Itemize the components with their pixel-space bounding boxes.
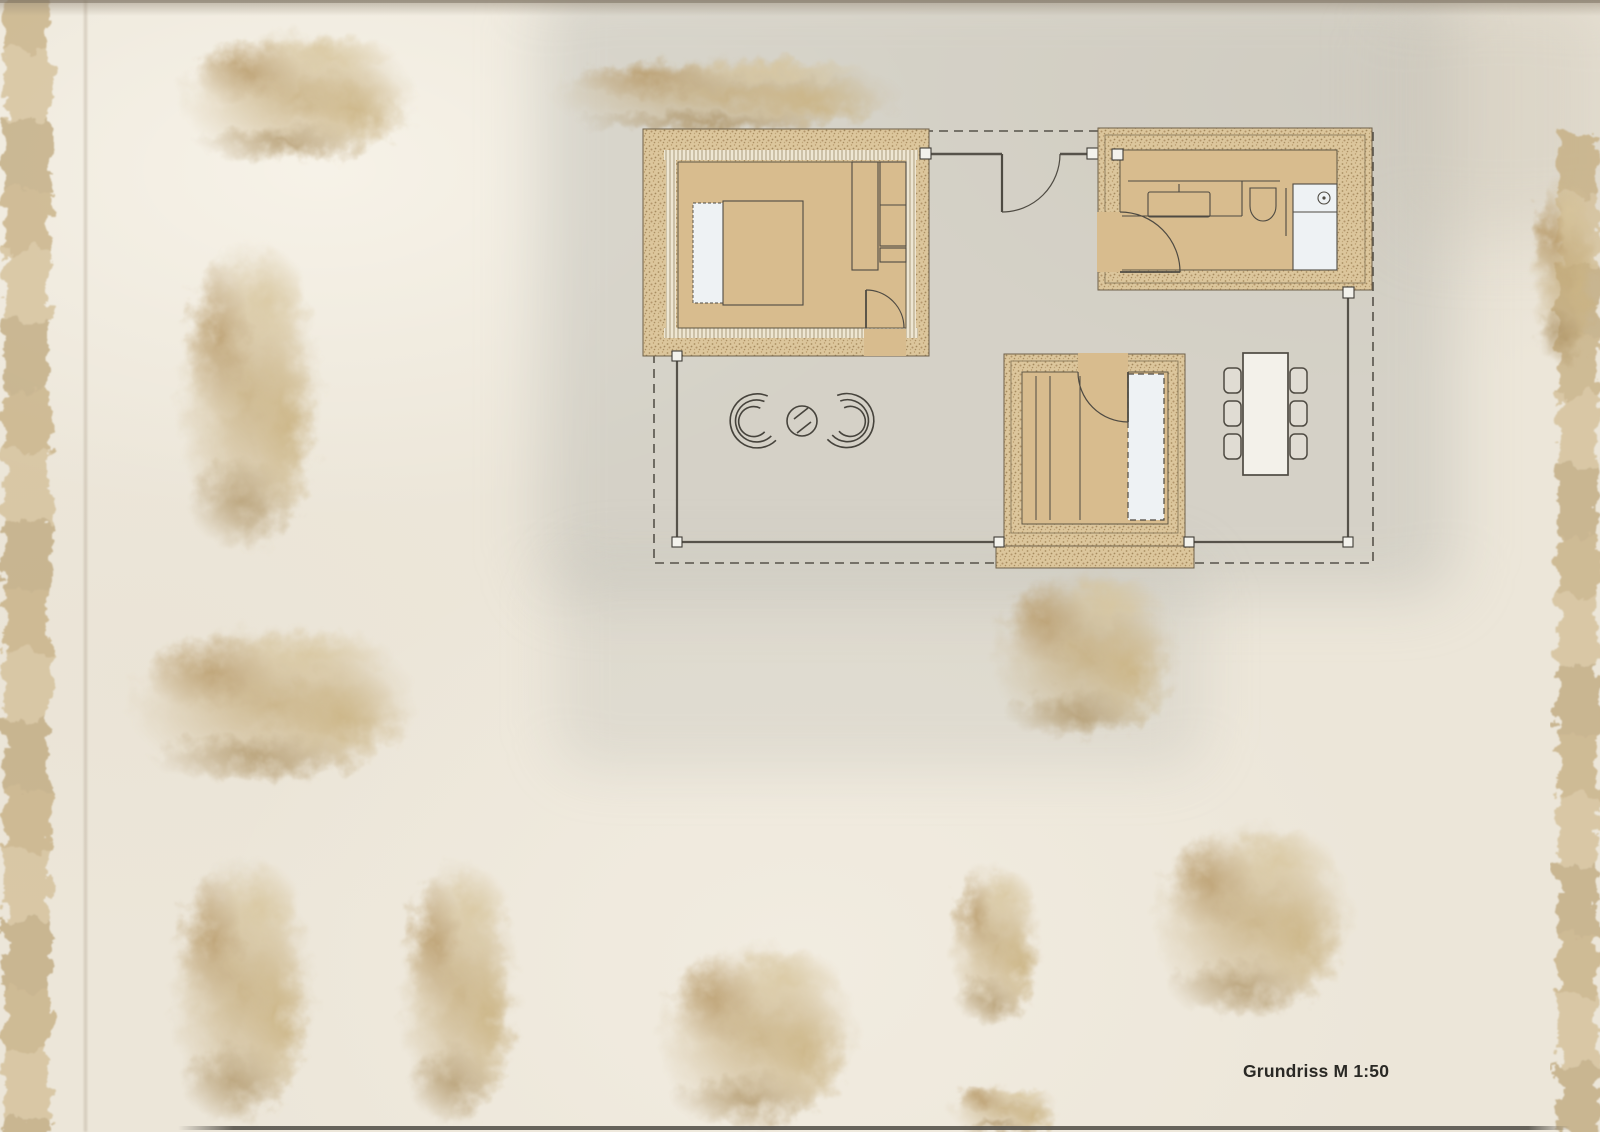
floor-plan-drawing (0, 0, 1600, 1132)
bed-mattress (723, 201, 803, 305)
column (1343, 537, 1353, 547)
entry-door (1002, 154, 1060, 212)
bathroom-block (1097, 128, 1372, 290)
column (672, 351, 682, 361)
kitchen-block (996, 353, 1194, 568)
coffee-table (787, 406, 817, 436)
bedroom-liner-left (666, 158, 676, 330)
shower (1293, 184, 1337, 270)
bedroom-liner-right (906, 158, 916, 330)
column (994, 537, 1004, 547)
bed (693, 201, 803, 305)
column (1087, 148, 1098, 159)
dining-set (1224, 353, 1307, 475)
site-plan-canvas: Grundriss M 1:50 (0, 0, 1600, 1132)
bed-pillow (693, 203, 723, 303)
kitchen-glazing (1128, 374, 1164, 520)
lounge-set (727, 391, 878, 452)
column (1343, 287, 1354, 298)
entry-facade (920, 148, 1098, 212)
column (1184, 537, 1194, 547)
paper-bottom-edge-line (178, 1126, 1570, 1130)
plan-title: Grundriss M 1:50 (1243, 1061, 1389, 1082)
column (672, 537, 682, 547)
armchair-left (727, 392, 777, 451)
dining-table (1243, 353, 1288, 475)
armchair-right (826, 391, 878, 452)
bedroom-liner-top (664, 150, 918, 160)
column (1112, 149, 1123, 160)
bedroom-block (643, 129, 929, 356)
column (920, 148, 931, 159)
